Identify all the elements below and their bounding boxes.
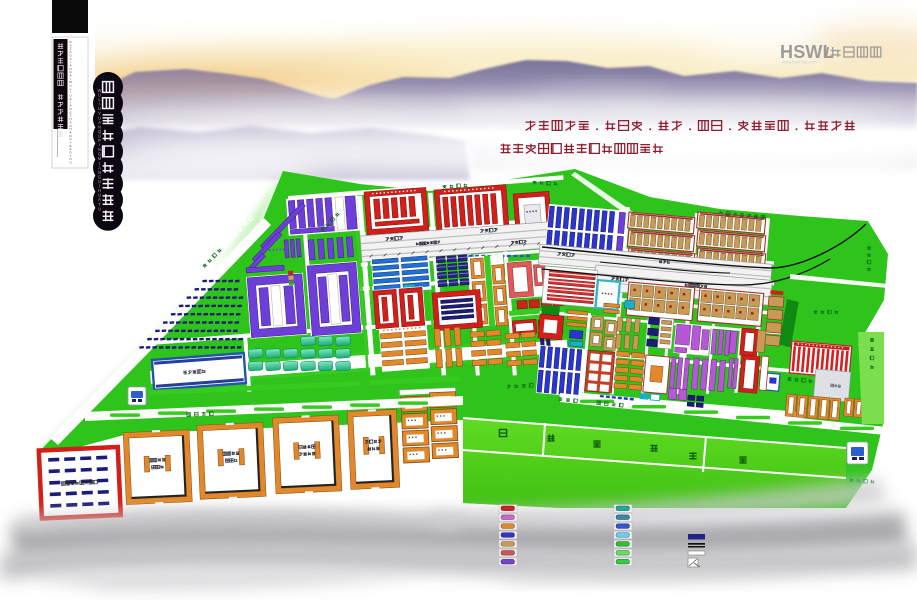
svg-text:U: U [69,161,71,165]
svg-text:www.hswl-log.com: www.hswl-log.com [782,60,817,65]
svg-text:U: U [98,206,101,211]
